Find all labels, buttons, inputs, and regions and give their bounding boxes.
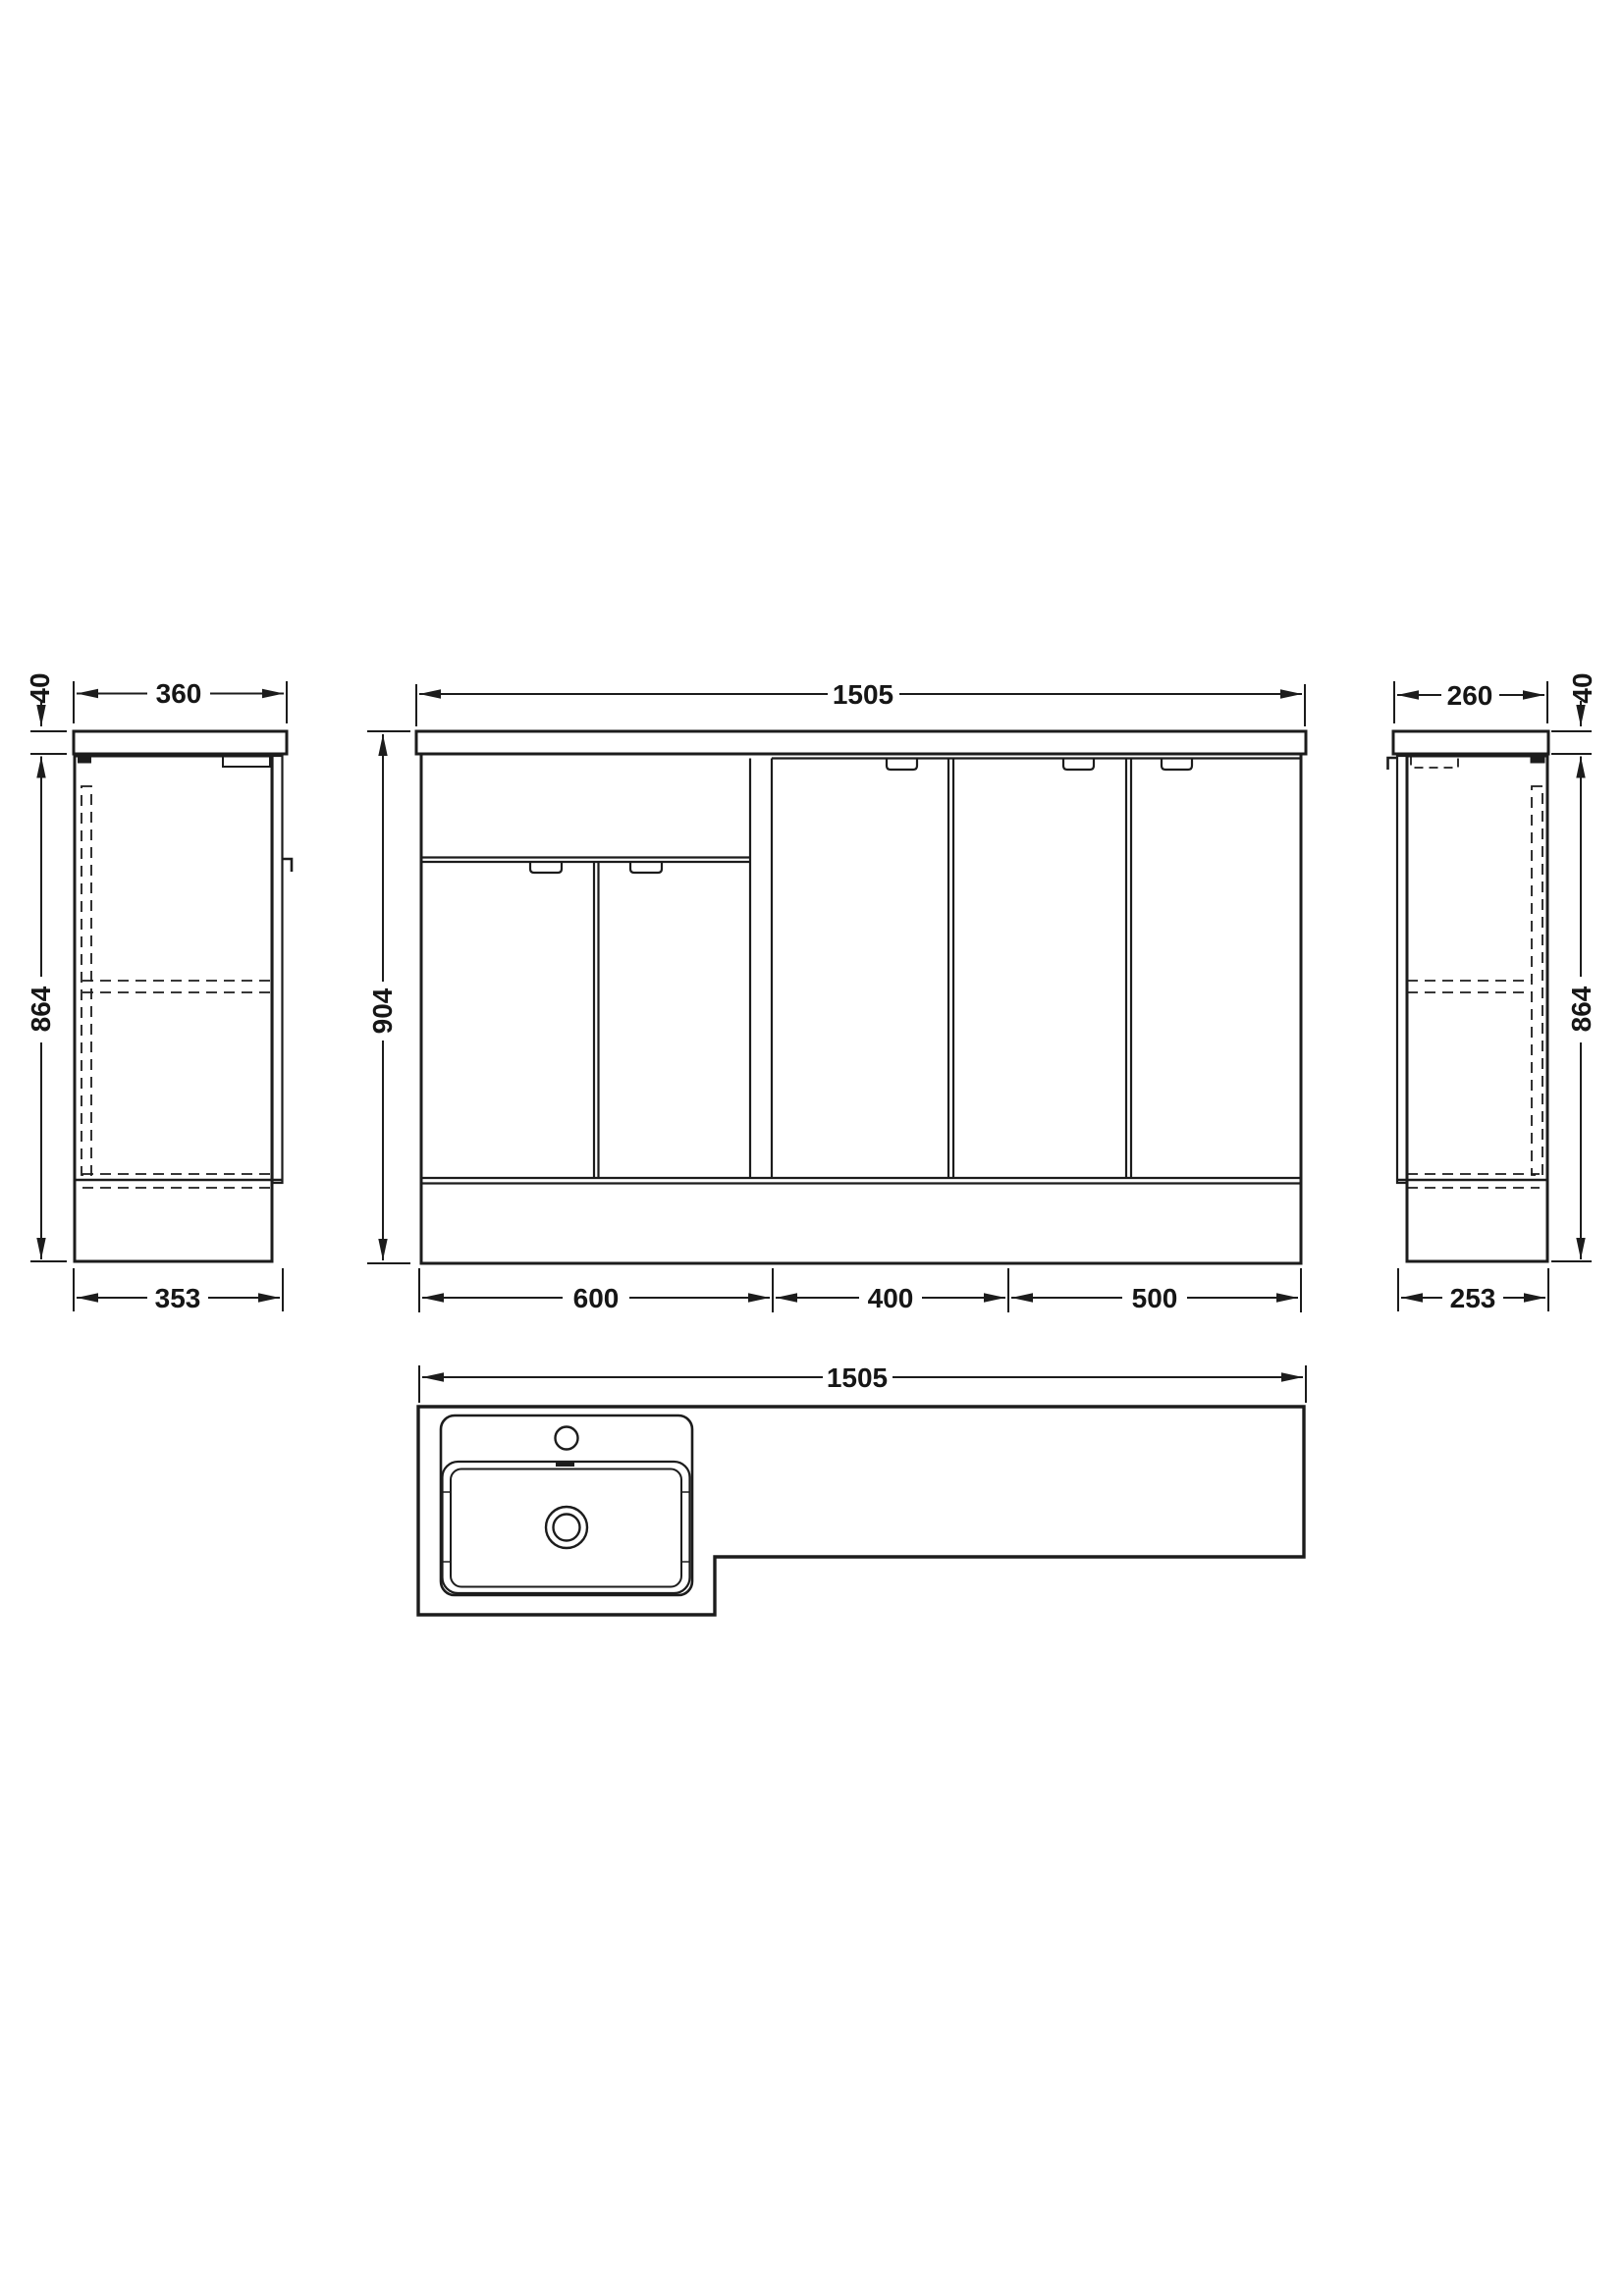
dim-label-unit-600: 600 [573, 1283, 620, 1313]
right-end-view [1388, 731, 1549, 1261]
left-view-top-recess [223, 757, 270, 768]
plan-overflow-slot [556, 1462, 574, 1468]
dim-label-right-height: 864 [1566, 986, 1596, 1032]
left-end-view [74, 731, 292, 1261]
technical-drawing: 360 40 864 353 1505 904 600 400 500 260 … [0, 0, 1623, 2296]
dim-label-left-height: 864 [26, 986, 56, 1032]
right-view-carcass [1407, 756, 1547, 1261]
right-view-hidden-panel [1532, 786, 1542, 1175]
plan-worktop-outline [418, 1407, 1304, 1615]
plan-bowl-outer [443, 1462, 690, 1593]
front-view-plinth-line [421, 1178, 1301, 1184]
front-view-worktop [416, 731, 1306, 754]
dim-label-front-height: 904 [367, 988, 398, 1034]
left-view-hidden-shelf [82, 981, 272, 992]
right-view-hinge [1531, 757, 1545, 764]
dim-40-right-extensions [1551, 731, 1592, 754]
plan-view [418, 1407, 1304, 1615]
right-view-dimensions [1394, 681, 1592, 1311]
dim-40-extensions [30, 731, 67, 754]
dim-label-plan-width: 1505 [827, 1362, 888, 1393]
dim-label-left-width: 360 [156, 678, 202, 709]
dim-label-left-depth: 353 [155, 1283, 201, 1313]
left-view-door-handle [283, 859, 293, 872]
front-elevation-view [416, 731, 1306, 1263]
dim-label-left-worktop-thickness: 40 [25, 672, 55, 703]
tall-door-1-handle [887, 760, 917, 771]
plan-tap-hole [556, 1427, 578, 1450]
tall-door-3-handle [1162, 760, 1192, 771]
plan-bowl-inner [451, 1469, 681, 1587]
vanity-door-left-handle [530, 863, 562, 874]
left-view-carcass [75, 756, 272, 1261]
plan-drain-inner [554, 1515, 580, 1541]
tall-door-2-handle [1063, 760, 1094, 771]
left-view-worktop [74, 731, 287, 754]
dim-label-unit-400: 400 [868, 1283, 914, 1313]
dim-label-unit-500: 500 [1132, 1283, 1178, 1313]
plan-basin-outer [441, 1415, 692, 1595]
dimension-labels: 360 40 864 353 1505 904 600 400 500 260 … [25, 672, 1597, 1393]
right-view-top-recess [1411, 757, 1458, 769]
drawing-sheet: 360 40 864 353 1505 904 600 400 500 260 … [0, 0, 1623, 2296]
plan-bowl-ticks [443, 1492, 690, 1562]
left-view-hinge [78, 757, 91, 764]
front-view-door-divider-2 [1126, 759, 1131, 1179]
front-view-vanity-door-divider [594, 862, 599, 1178]
front-view-door-divider-1 [948, 759, 953, 1179]
right-view-worktop [1393, 731, 1548, 754]
right-view-door-handle [1388, 758, 1398, 770]
front-view-dimensions [367, 684, 1305, 1312]
right-view-hidden-shelf [1407, 981, 1532, 992]
left-view-dimensions [30, 681, 287, 1311]
front-view-panel-bottom [421, 858, 750, 863]
left-view-door-panel [273, 756, 283, 1183]
dim-label-right-depth: 253 [1450, 1283, 1496, 1313]
dim-label-front-width: 1505 [833, 679, 893, 710]
dim-label-right-width: 260 [1447, 680, 1493, 711]
front-view-unit-junction [750, 759, 772, 1179]
vanity-door-right-handle [630, 863, 662, 874]
front-view-carcass [421, 754, 1301, 1263]
dim-label-right-worktop-thickness: 40 [1567, 672, 1597, 703]
